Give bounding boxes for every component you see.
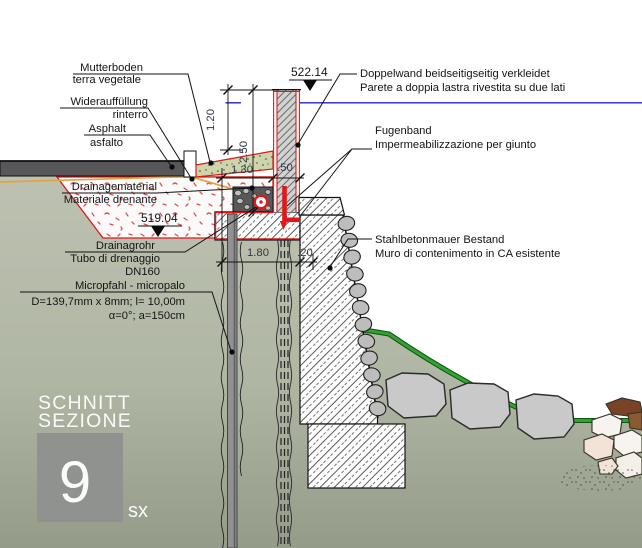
curb-stone (184, 151, 196, 177)
label-micropfahl-spec1: D=139,7mm x 8mm; l= 10,00m (31, 296, 185, 308)
label-mutterboden-it: terra vegetale (73, 74, 141, 86)
label-wiederauffuellung-it: rinterro (113, 109, 148, 121)
label-stahlbetonmauer-de: Stahlbetonmauer Bestand (375, 234, 504, 246)
label-micropfahl-spec2: α=0°; a=150cm (109, 310, 185, 322)
section-number: 9 (59, 450, 91, 515)
level-upper-value: 522.14 (291, 65, 328, 79)
label-drainagematerial-de: Drainagematerial (72, 181, 157, 193)
label-fugenband-de: Fugenband (375, 125, 432, 137)
section-suffix: sx (128, 500, 148, 522)
existing-wall-footing (308, 424, 405, 488)
label-fugenband-it: Impermeabilizzazione per giunto (375, 139, 536, 151)
label-mutterboden-de: Mutterboden (80, 62, 143, 74)
dim-1-20: 1.20 (205, 109, 217, 131)
asphalt-layer (0, 161, 186, 176)
label-asphalt-it: asfalto (90, 137, 123, 149)
dim-0-50: .50 (277, 162, 293, 174)
label-wiederauffuellung-de: Widerauffüllung (70, 96, 148, 108)
label-asphalt-de: Asphalt (89, 123, 127, 135)
section-drawing: 522.14 519.04 1.20 2.50 1.30 .50 1.80 .2… (0, 0, 642, 548)
label-micropfahl: Micropfahl - micropalo (75, 280, 185, 292)
section-title-it: SEZIONE (38, 410, 132, 432)
label-stahlbetonmauer-it: Muro di contenimento in CA esistente (375, 248, 560, 260)
dim-2-50: 2.50 (238, 141, 250, 163)
label-drainagrohr-size: DN160 (125, 266, 160, 278)
label-drainagrohr-it: Tubo di drenaggio (70, 253, 160, 265)
label-drainagrohr-de: Drainagrohr (96, 240, 155, 252)
dim-1-80: 1.80 (247, 247, 269, 259)
level-lower-value: 519.04 (141, 211, 178, 225)
wall-cap (299, 198, 345, 216)
dim-1-30: 1.30 (231, 164, 253, 176)
label-doppelwand-it: Parete a doppia lastra rivestita su due … (360, 82, 565, 94)
dim-0-20: .20 (297, 247, 313, 259)
label-drainagematerial-it: Materiale drenante (64, 194, 157, 206)
label-doppelwand-de: Doppelwand beidseitigseitig verkleidet (360, 68, 551, 80)
technical-drawing-canvas: 522.14 519.04 1.20 2.50 1.30 .50 1.80 .2… (0, 0, 642, 548)
